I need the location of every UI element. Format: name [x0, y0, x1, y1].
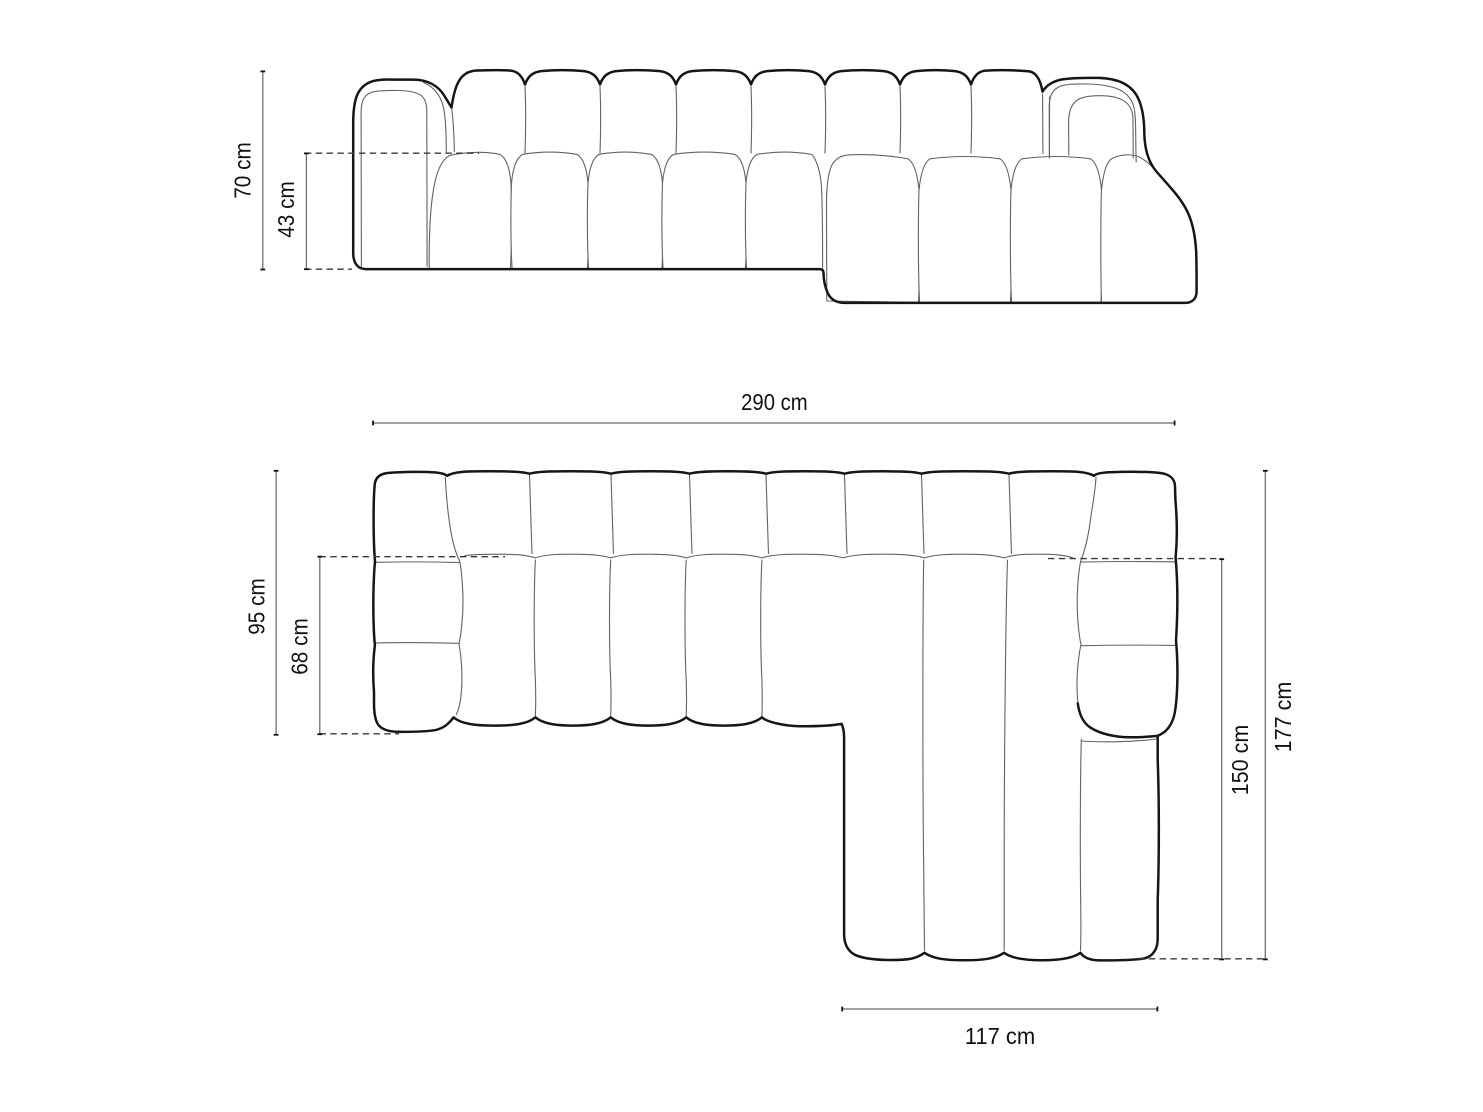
svg-text:43 cm: 43 cm [273, 181, 299, 238]
svg-text:290 cm: 290 cm [741, 389, 808, 415]
svg-text:68 cm: 68 cm [287, 618, 313, 675]
svg-text:177 cm: 177 cm [1270, 682, 1296, 753]
svg-text:117 cm: 117 cm [965, 1023, 1036, 1049]
svg-text:70 cm: 70 cm [230, 142, 256, 199]
svg-text:150 cm: 150 cm [1227, 725, 1253, 796]
svg-text:95 cm: 95 cm [243, 578, 269, 635]
